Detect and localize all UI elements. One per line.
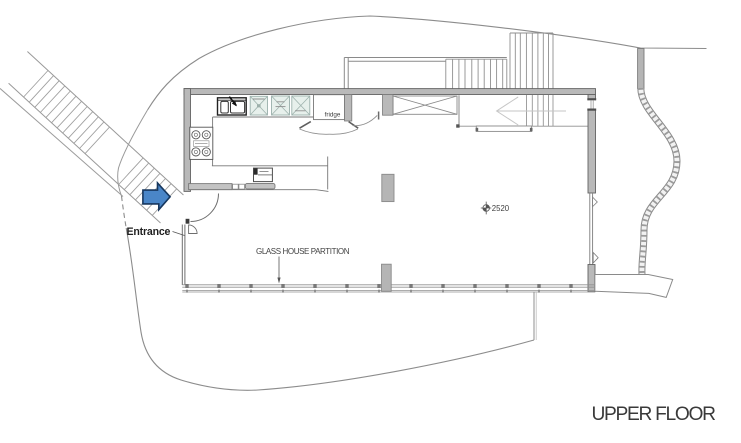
svg-text:GLASS HOUSE PARTITION: GLASS HOUSE PARTITION <box>256 247 350 256</box>
svg-text:Entrance: Entrance <box>127 226 171 238</box>
svg-text:fridge: fridge <box>325 112 341 119</box>
svg-text:2520: 2520 <box>492 204 510 213</box>
svg-text:UPPER FLOOR: UPPER FLOOR <box>592 404 716 425</box>
